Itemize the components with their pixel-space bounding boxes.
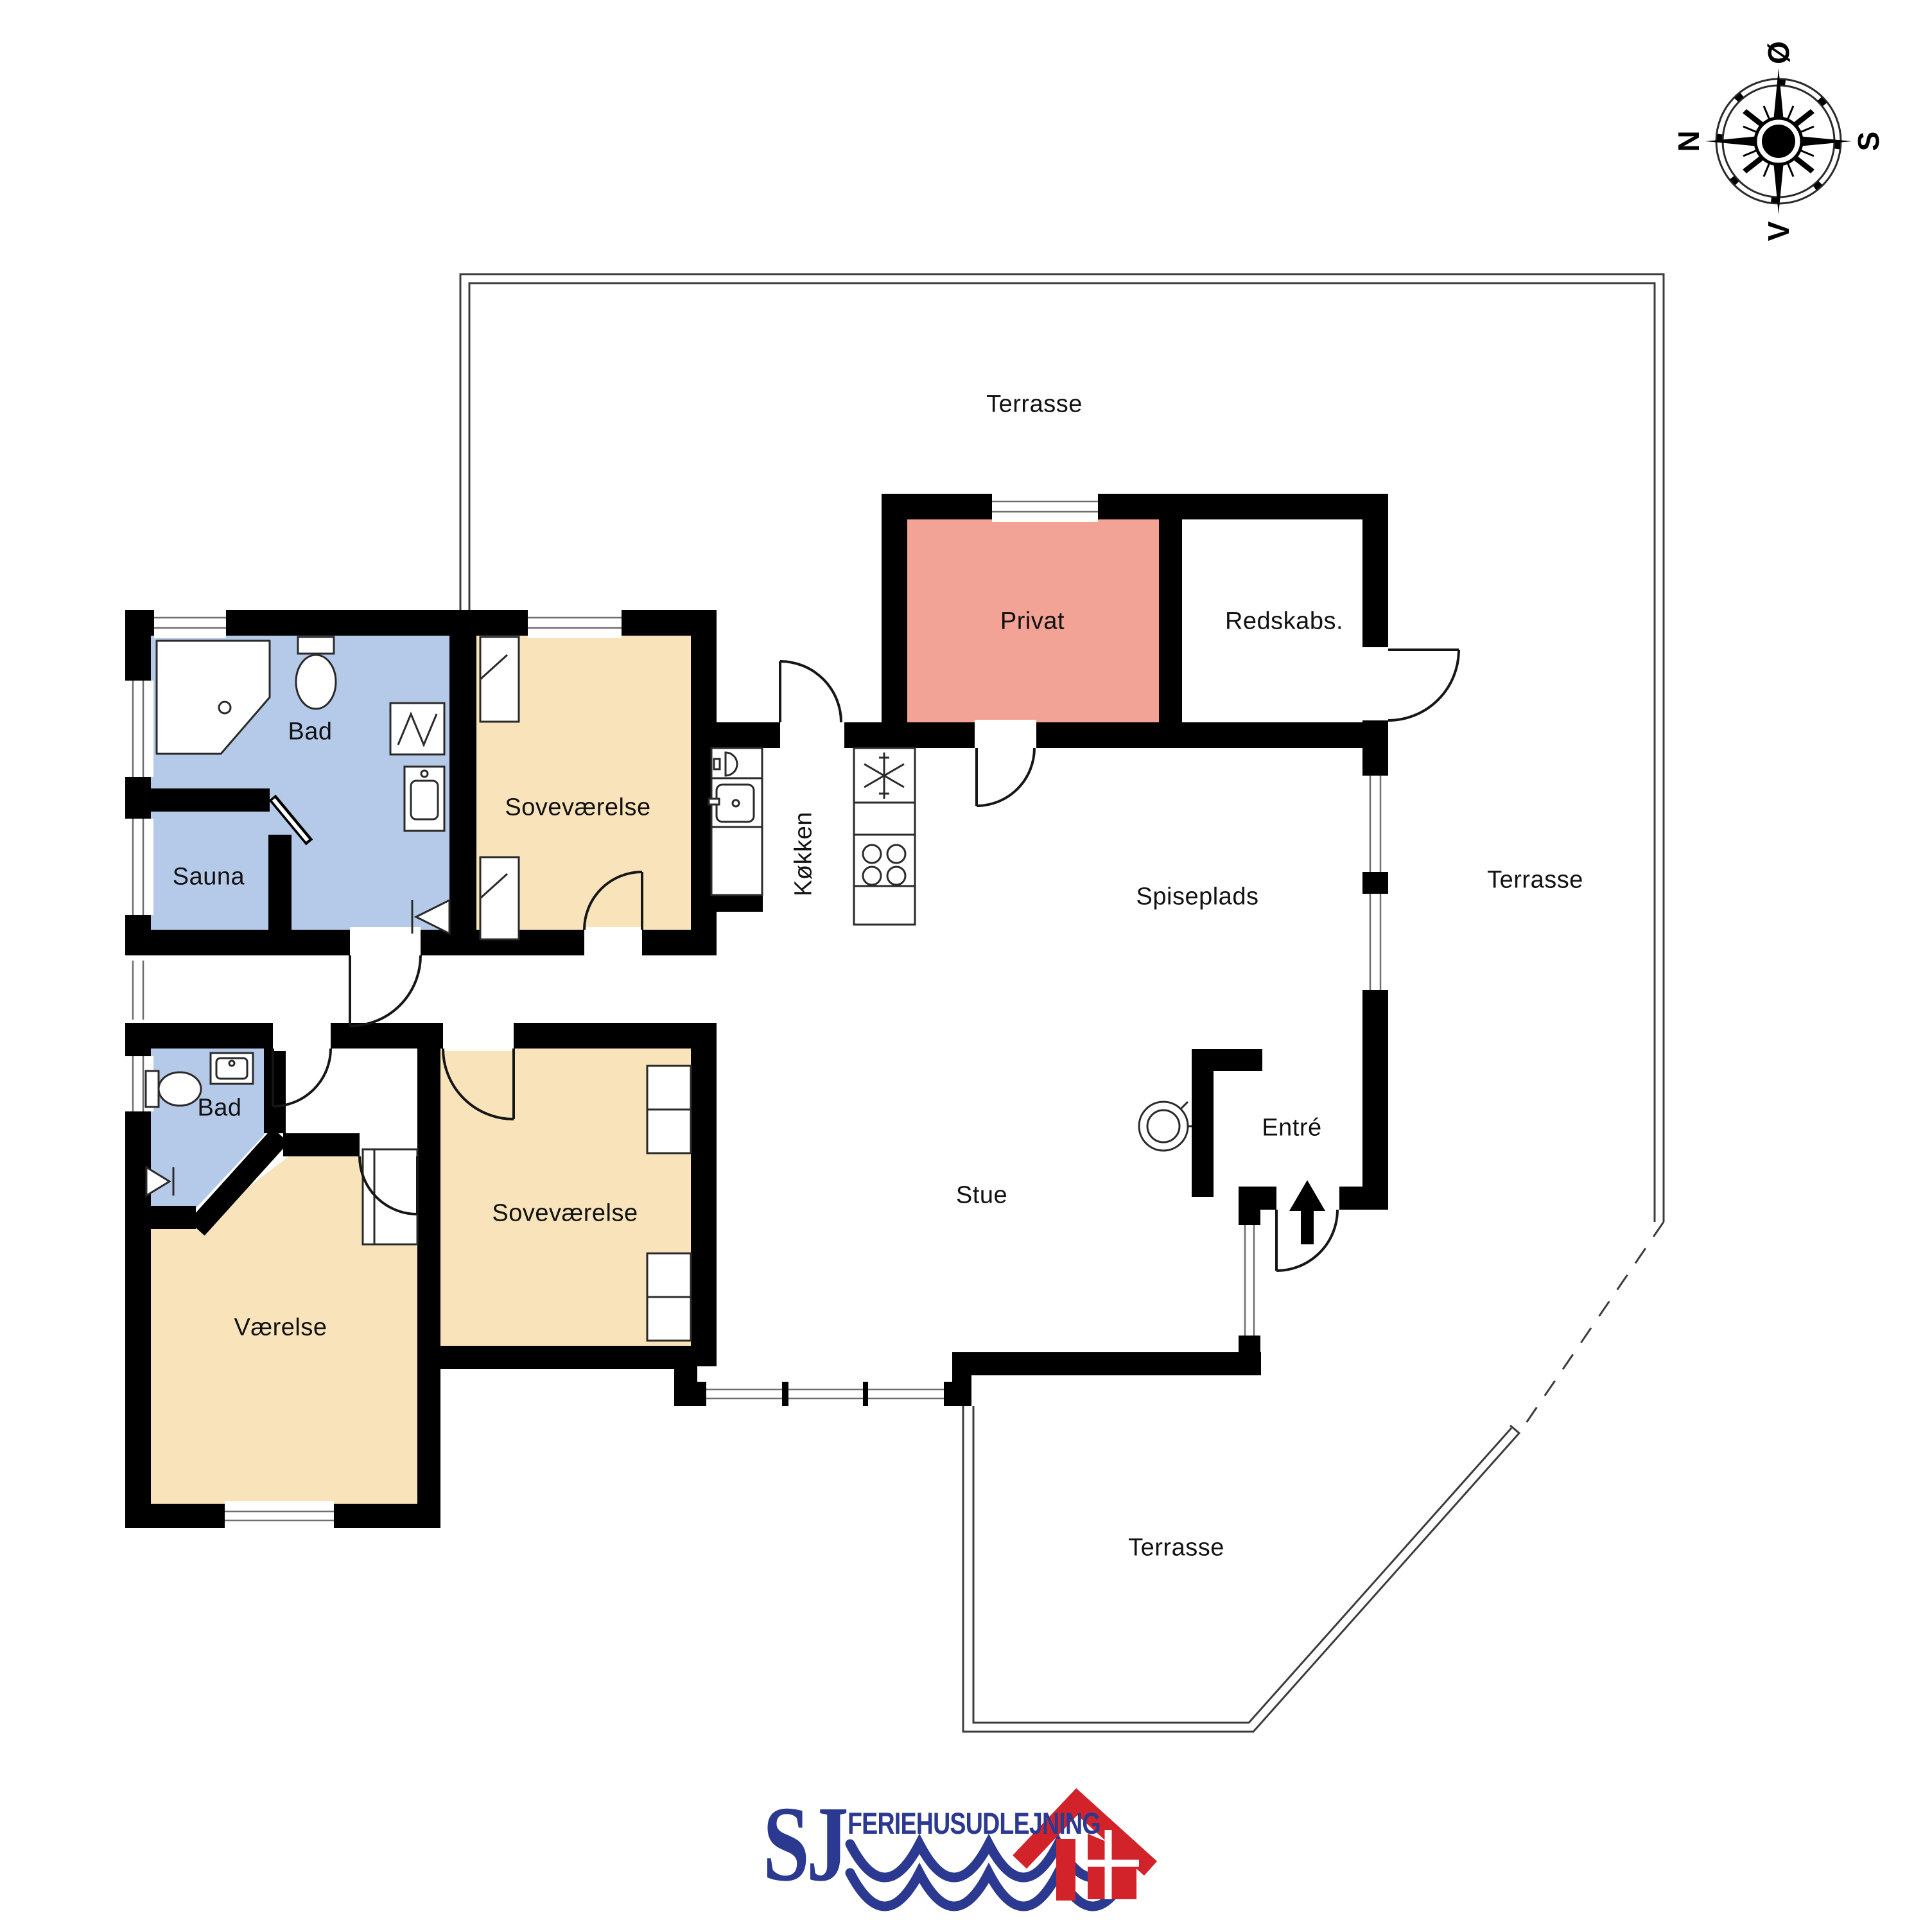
door: [977, 748, 1034, 806]
shed-door: [1388, 650, 1459, 720]
terrace-door: [780, 661, 841, 722]
room-label-terrasse-top: Terrasse: [986, 391, 1083, 419]
logo-monogram: SJ: [763, 1790, 846, 1898]
room-label-sauna: Sauna: [173, 864, 245, 891]
wardrobe: [647, 1253, 691, 1341]
room-label-entre: Entré: [1262, 1115, 1321, 1142]
window: [123, 961, 153, 1020]
window: [225, 1501, 334, 1531]
window: [992, 491, 1098, 522]
bathroom-sink: [211, 1053, 253, 1084]
window: [788, 1379, 863, 1409]
toilet: [296, 637, 336, 709]
window: [1360, 776, 1391, 872]
wood-stove: [1139, 1102, 1192, 1151]
compass-north-label: N: [1672, 130, 1705, 152]
room-label-terrasse-right: Terrasse: [1487, 867, 1583, 894]
compass-rose: Ø S V N: [1672, 41, 1885, 241]
room-label-spiseplads: Spiseplads: [1136, 883, 1259, 911]
bathroom-sink: [405, 767, 444, 831]
floorplan-canvas: Ø S V N Terrasse Terrasse Terrasse Bad S…: [0, 0, 1932, 1932]
room-label-bad-lower: Bad: [197, 1095, 241, 1122]
room-label-bad-top: Bad: [288, 718, 332, 746]
kitchen-counter: [709, 748, 762, 895]
room-label-redskabs: Redskabs.: [1225, 608, 1343, 636]
logo-waves: [850, 1844, 1127, 1906]
window: [123, 681, 153, 777]
window: [1360, 894, 1391, 990]
room-label-terrasse-bottom: Terrasse: [1128, 1535, 1224, 1562]
window: [528, 607, 622, 638]
compass-south-label: S: [1852, 132, 1885, 152]
window: [123, 819, 153, 915]
room-label-sovevaerelse-top: Soveværelse: [505, 794, 650, 822]
wardrobe: [363, 1149, 417, 1244]
compass-east-label: Ø: [1762, 41, 1795, 64]
room-label-vaerelse: Værelse: [234, 1314, 327, 1342]
door: [350, 955, 421, 1026]
logo-company-name: FERIEHUSUDLEJNING: [848, 1808, 1101, 1838]
wardrobe: [480, 637, 519, 722]
room-label-stue: Stue: [956, 1182, 1007, 1210]
wardrobe: [647, 1066, 691, 1153]
toilet: [146, 1071, 201, 1107]
window: [706, 1379, 782, 1409]
window: [868, 1379, 944, 1409]
room-label-sovevaerelse-lower: Soveværelse: [492, 1200, 638, 1228]
compass-west-label: V: [1762, 221, 1795, 241]
room-label-koekken: Køkken: [790, 812, 818, 896]
wardrobe: [480, 857, 519, 939]
washing-machine: [390, 703, 444, 754]
kitchen-appliances: [854, 748, 915, 925]
window: [154, 607, 226, 638]
room-label-privat: Privat: [1000, 608, 1065, 636]
window: [1236, 1225, 1263, 1336]
